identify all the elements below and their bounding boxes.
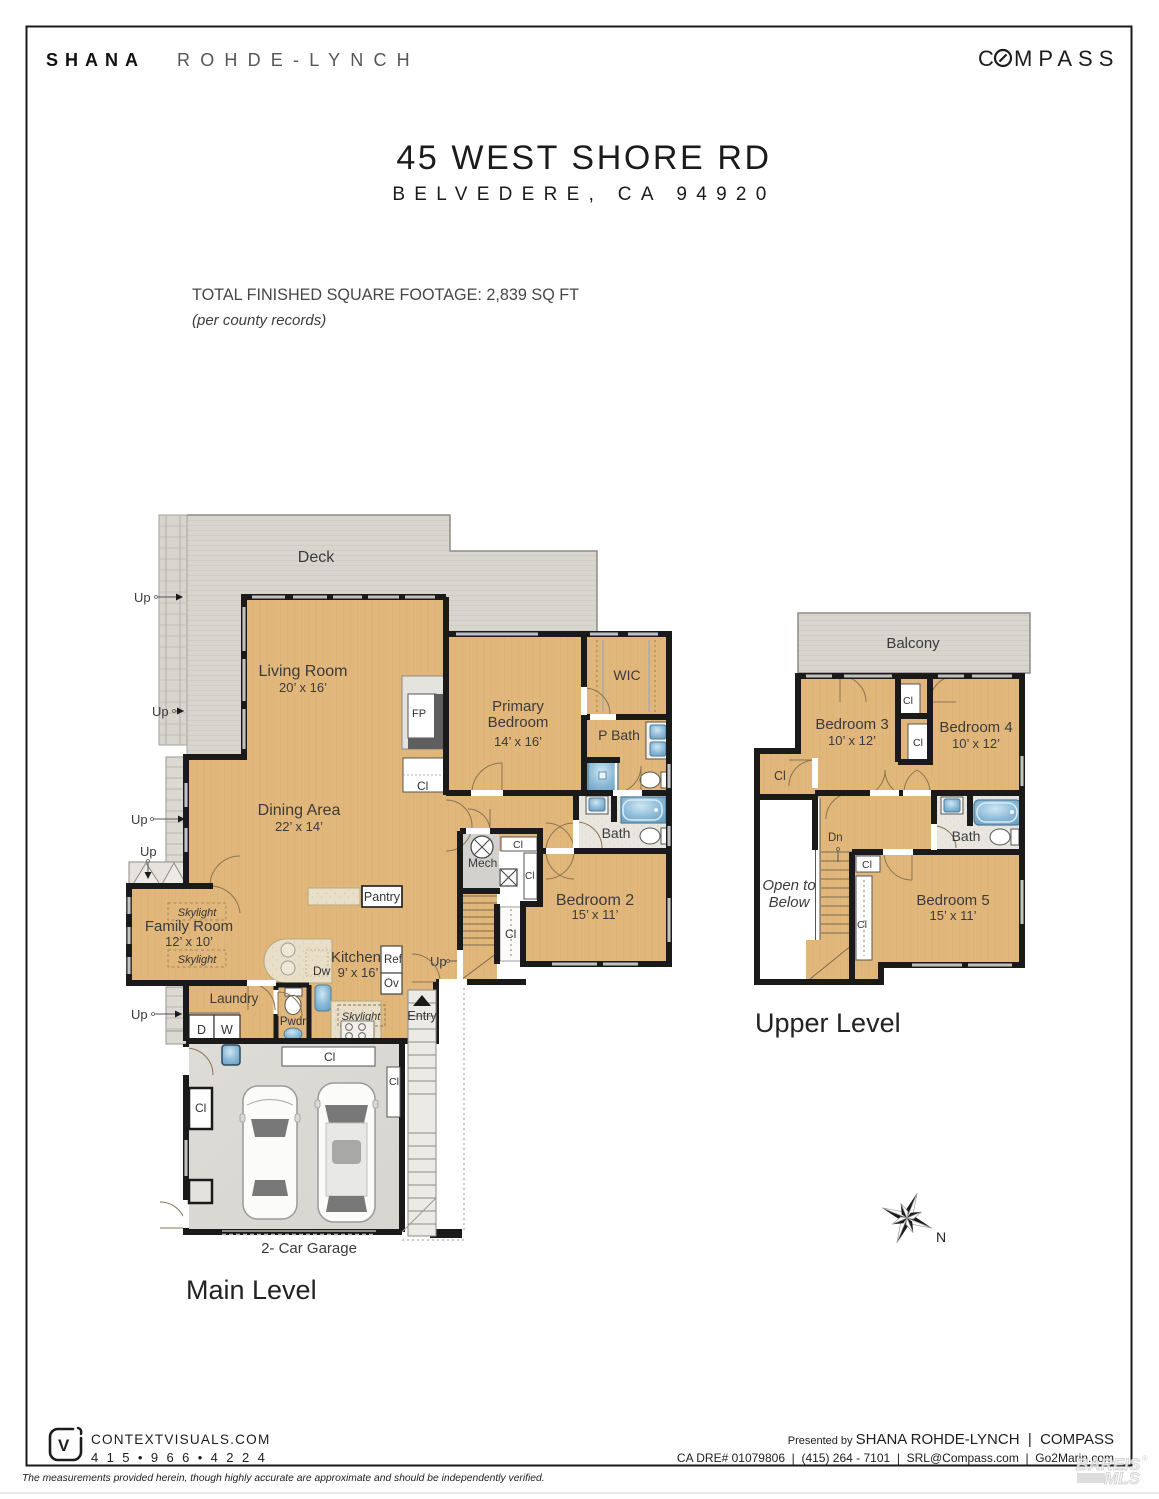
svg-text:Upper Level: Upper Level (755, 1008, 901, 1038)
svg-text:SHANA: SHANA (46, 50, 145, 70)
svg-text:Cl: Cl (857, 919, 867, 931)
svg-text:45 WEST SHORE RD: 45 WEST SHORE RD (396, 139, 771, 177)
svg-text:Bath: Bath (602, 825, 631, 841)
svg-text:Main Level: Main Level (186, 1275, 317, 1305)
svg-text:Bedroom 5: Bedroom 5 (916, 892, 989, 909)
svg-text:Cl: Cl (774, 769, 786, 783)
svg-text:Bedroom 3: Bedroom 3 (815, 716, 888, 733)
svg-text:10’ x 12’: 10’ x 12’ (828, 733, 876, 748)
svg-text:P Bath: P Bath (598, 727, 640, 743)
svg-text:®: ® (1142, 1454, 1148, 1463)
svg-text:Cl: Cl (505, 927, 516, 941)
svg-text:Family Room: Family Room (145, 918, 233, 935)
svg-text:Dining Area: Dining Area (258, 802, 341, 819)
svg-text:Laundry: Laundry (210, 991, 259, 1006)
svg-text:Up: Up (131, 1007, 148, 1022)
svg-text:Open to: Open to (762, 877, 815, 894)
svg-text:Cl: Cl (525, 871, 534, 882)
svg-text:CA DRE# 01079806 | (415) 264: CA DRE# 01079806 | (415) 264 - 7101 | SR… (677, 1451, 1114, 1465)
svg-text:14’ x 16’: 14’ x 16’ (494, 734, 542, 749)
svg-text:20’ x 16’: 20’ x 16’ (279, 680, 327, 695)
svg-text:(per county records): (per county records) (192, 312, 326, 329)
svg-text:Living Room: Living Room (259, 663, 348, 680)
svg-text:Ref: Ref (384, 954, 403, 966)
svg-text:Entry: Entry (407, 1009, 437, 1023)
svg-text:10’ x 12’: 10’ x 12’ (952, 736, 1000, 751)
svg-text:Pwdr: Pwdr (280, 1016, 306, 1028)
svg-text:Pantry: Pantry (364, 890, 401, 904)
svg-text:22’ x 14’: 22’ x 14’ (275, 819, 323, 834)
svg-text:2- Car Garage: 2- Car Garage (261, 1240, 357, 1257)
svg-text:Cl: Cl (913, 737, 923, 749)
svg-text:15’ x 11’: 15’ x 11’ (930, 908, 977, 923)
svg-text:Up: Up (152, 704, 169, 719)
svg-text:Up: Up (134, 590, 151, 605)
svg-text:TOTAL FINISHED SQUARE FOOTAGE:: TOTAL FINISHED SQUARE FOOTAGE: 2,839 SQ … (192, 286, 579, 304)
svg-text:V: V (58, 1436, 70, 1455)
svg-text:Deck: Deck (298, 549, 335, 566)
svg-text:Mech: Mech (468, 856, 497, 870)
svg-text:MPASS: MPASS (1014, 46, 1119, 71)
svg-text:Skylight: Skylight (178, 954, 217, 966)
svg-text:Up: Up (430, 954, 447, 969)
svg-text:CONTEXTVISUALS.COM: CONTEXTVISUALS.COM (91, 1432, 270, 1447)
svg-text:12’ x 10’: 12’ x 10’ (165, 934, 213, 949)
svg-text:Bedroom 4: Bedroom 4 (939, 719, 1012, 736)
svg-text:D: D (197, 1023, 206, 1037)
svg-text:C: C (978, 46, 995, 71)
svg-text:WIC: WIC (613, 667, 640, 683)
svg-text:Cl: Cl (513, 839, 523, 851)
svg-text:Cl: Cl (324, 1050, 335, 1064)
svg-text:Kitchen: Kitchen (331, 949, 381, 966)
svg-text:FP: FP (412, 708, 426, 720)
svg-text:Primary: Primary (492, 698, 544, 715)
svg-text:W: W (221, 1023, 233, 1037)
svg-text:Balcony: Balcony (886, 635, 940, 652)
svg-text:Cl: Cl (862, 859, 872, 871)
svg-text:Cl: Cl (195, 1101, 206, 1115)
svg-text:Up: Up (131, 812, 148, 827)
svg-text:Below: Below (769, 894, 811, 911)
svg-text:Dw: Dw (313, 964, 331, 978)
svg-text:9’ x 16’: 9’ x 16’ (338, 965, 379, 980)
svg-text:Bedroom: Bedroom (488, 714, 549, 731)
svg-text:BELVEDERE, CA 94920: BELVEDERE, CA 94920 (392, 184, 775, 205)
svg-text:Up: Up (140, 844, 157, 859)
svg-text:N: N (936, 1229, 946, 1245)
svg-text:Cl: Cl (389, 1076, 399, 1088)
svg-text:Ov: Ov (384, 978, 399, 990)
svg-text:415•966•4224: 415•966•4224 (91, 1450, 273, 1465)
svg-text:Cl: Cl (417, 779, 428, 793)
svg-text:ROHDE-LYNCH: ROHDE-LYNCH (177, 50, 420, 70)
svg-text:15’ x 11’: 15’ x 11’ (572, 907, 619, 922)
svg-text:MLS: MLS (1104, 1469, 1141, 1488)
svg-text:Cl: Cl (903, 695, 913, 707)
svg-text:Dn: Dn (828, 832, 843, 844)
svg-text:Bath: Bath (952, 828, 981, 844)
svg-text:The measurements provided here: The measurements provided herein, though… (22, 1473, 545, 1484)
